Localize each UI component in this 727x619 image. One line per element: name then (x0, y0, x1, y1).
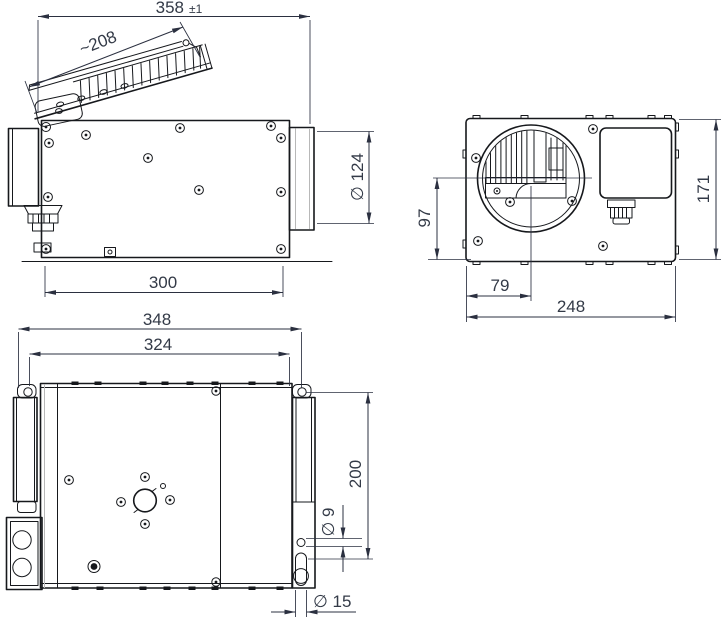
knockout-hole (13, 531, 31, 549)
duct-spigot-side (290, 128, 315, 231)
louver-slats (76, 47, 206, 103)
front-view: 97 79 248 171 (415, 116, 721, 323)
technical-drawing: 358 ±1 ~208 ∅ 124 300 (0, 0, 727, 619)
dim-front-height: 171 (694, 175, 713, 203)
latch (182, 37, 200, 60)
dim-hole-diameter: ∅ 9 (319, 508, 338, 537)
dim-inlet-center-offset: 79 (491, 276, 510, 295)
cable-gland-front (608, 200, 636, 224)
housing-side (42, 121, 290, 258)
dim-inlet-center-height: 97 (415, 209, 434, 228)
dim-body-length: 300 (149, 273, 177, 292)
dim-overall-width-tol: ±1 (189, 2, 203, 16)
side-view-dimensions: 358 ±1 ~208 ∅ 124 300 (25, 0, 374, 297)
housing-front (466, 119, 676, 262)
access-panel (600, 128, 672, 198)
bottom-view: 348 324 200 ∅ 9 ∅ 15 (7, 310, 374, 617)
knockout-hole (13, 558, 31, 576)
dim-mounting-height: 200 (346, 460, 365, 488)
dim-duct-diameter: ∅ 124 (348, 153, 367, 201)
housing-bottom (41, 384, 293, 589)
motor-mount (117, 473, 175, 529)
edge-tabs (72, 382, 284, 591)
dim-overall-width: 358 (156, 0, 184, 17)
dim-front-width: 248 (557, 297, 585, 316)
side-view: 358 ±1 ~208 ∅ 124 300 (9, 0, 375, 297)
impeller (486, 122, 566, 184)
mounting-hole (297, 539, 305, 547)
impeller-base-plate (486, 178, 567, 199)
bottom-view-dimensions: 348 324 200 ∅ 9 ∅ 15 (19, 310, 374, 617)
clamp (105, 248, 116, 257)
side-view-part (9, 35, 333, 262)
front-view-part (463, 116, 679, 265)
mounting-bracket-left (14, 385, 38, 513)
mounting-bracket-right (293, 385, 316, 589)
grommet (88, 561, 100, 573)
screw-heads-side (42, 122, 286, 254)
bottom-view-part (7, 382, 316, 591)
cable-gland-side (24, 206, 62, 253)
screw-heads-bottom (65, 387, 221, 586)
dim-mounting-inner-span: 324 (144, 335, 172, 354)
electrical-box-bottom (7, 518, 43, 590)
dim-slot-diameter: ∅ 15 (313, 592, 351, 611)
louver-grille (26, 35, 212, 119)
drawing-canvas: 358 ±1 ~208 ∅ 124 300 (0, 0, 727, 619)
dim-mounting-span: 348 (143, 310, 171, 329)
